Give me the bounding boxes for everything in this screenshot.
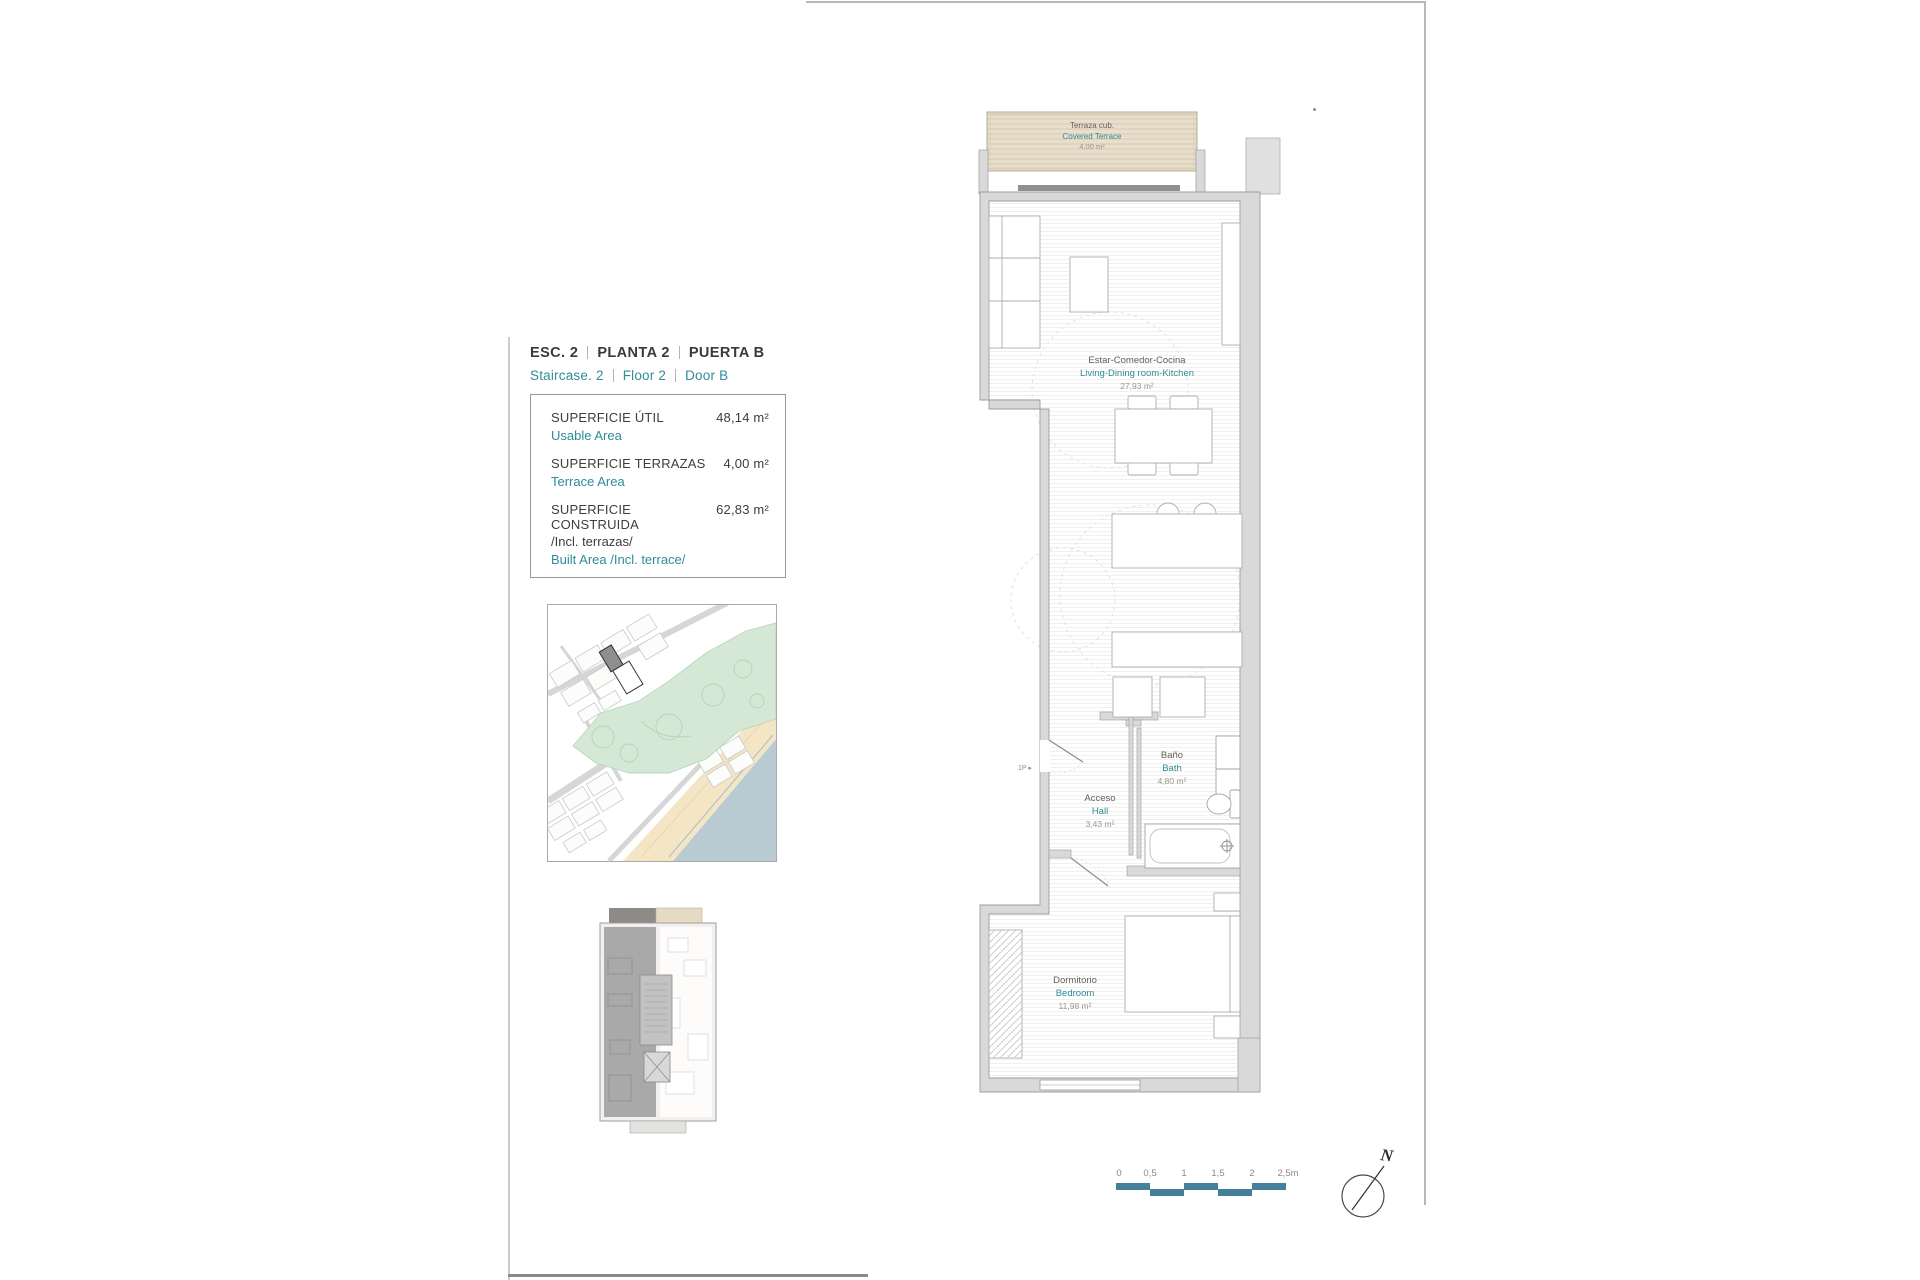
built-area-value: 62,83 m² bbox=[716, 502, 769, 532]
scale-tick-25m: 2,5m bbox=[1277, 1168, 1298, 1179]
built-area-label-es2: /Incl. terrazas/ bbox=[551, 534, 769, 549]
puerta-label: PUERTA B bbox=[689, 345, 765, 361]
key-plan bbox=[592, 890, 722, 1152]
usable-area-label-es: SUPERFICIE ÚTIL bbox=[551, 410, 664, 425]
separator bbox=[587, 346, 588, 359]
staircase-label: Staircase. 2 bbox=[530, 368, 604, 383]
north-label: N bbox=[1378, 1145, 1395, 1166]
page-border-right bbox=[1424, 1, 1426, 1205]
scale-tick-2: 2 bbox=[1249, 1168, 1254, 1179]
scale-segment bbox=[1150, 1189, 1184, 1196]
built-area-label-es: SUPERFICIE CONSTRUIDA bbox=[551, 502, 716, 532]
usable-area-value: 48,14 m² bbox=[716, 410, 769, 425]
planta-label: PLANTA 2 bbox=[597, 345, 669, 361]
page-border-top bbox=[806, 1, 1426, 3]
plan-subtitle: Staircase. 2Floor 2Door B bbox=[530, 368, 728, 383]
entrance-marker: 1P ▸ bbox=[1018, 764, 1032, 772]
scale-segment bbox=[1184, 1183, 1218, 1190]
door-label: Door B bbox=[685, 368, 728, 383]
usable-area-label-en: Usable Area bbox=[551, 428, 769, 443]
north-compass: N bbox=[1330, 1140, 1410, 1230]
scale-tick-15: 1,5 bbox=[1211, 1168, 1224, 1179]
site-location-map bbox=[547, 604, 777, 862]
key-plan-drawing bbox=[592, 890, 722, 1152]
floor-plan-drawing bbox=[975, 100, 1295, 1105]
scale-segment bbox=[1252, 1183, 1286, 1190]
page-border-left bbox=[508, 337, 510, 1280]
stray-dot bbox=[1313, 108, 1316, 111]
plan-title: ESC. 2PLANTA 2PUERTA B bbox=[530, 345, 765, 361]
terrace-area-label-en: Terrace Area bbox=[551, 474, 769, 489]
terrace-area-label-es: SUPERFICIE TERRAZAS bbox=[551, 456, 706, 471]
terrace-area-row: SUPERFICIE TERRAZAS 4,00 m² Terrace Area bbox=[551, 456, 769, 489]
area-summary-box: SUPERFICIE ÚTIL 48,14 m² Usable Area SUP… bbox=[530, 394, 786, 578]
page-border-bottom bbox=[508, 1274, 868, 1277]
scale-segment bbox=[1116, 1183, 1150, 1190]
separator bbox=[675, 369, 676, 382]
covered-terrace bbox=[987, 112, 1197, 171]
scale-bar: 0 0,5 1 1,5 2 2,5m bbox=[1116, 1168, 1292, 1200]
separator bbox=[679, 346, 680, 359]
terrace-area-value: 4,00 m² bbox=[724, 456, 769, 471]
floor-label: Floor 2 bbox=[623, 368, 666, 383]
scale-tick-1: 1 bbox=[1181, 1168, 1186, 1179]
scale-segment bbox=[1218, 1189, 1252, 1196]
esc-label: ESC. 2 bbox=[530, 345, 578, 361]
scale-tick-05: 0,5 bbox=[1143, 1168, 1156, 1179]
apartment-floor-plan bbox=[975, 100, 1295, 1105]
scale-tick-0: 0 bbox=[1116, 1168, 1121, 1179]
built-area-label-en: Built Area /Incl. terrace/ bbox=[551, 552, 769, 567]
built-area-row: SUPERFICIE CONSTRUIDA 62,83 m² /Incl. te… bbox=[551, 502, 769, 567]
site-map-drawing bbox=[548, 605, 776, 861]
compass-drawing: N bbox=[1330, 1140, 1410, 1230]
usable-area-row: SUPERFICIE ÚTIL 48,14 m² Usable Area bbox=[551, 410, 769, 443]
separator bbox=[613, 369, 614, 382]
